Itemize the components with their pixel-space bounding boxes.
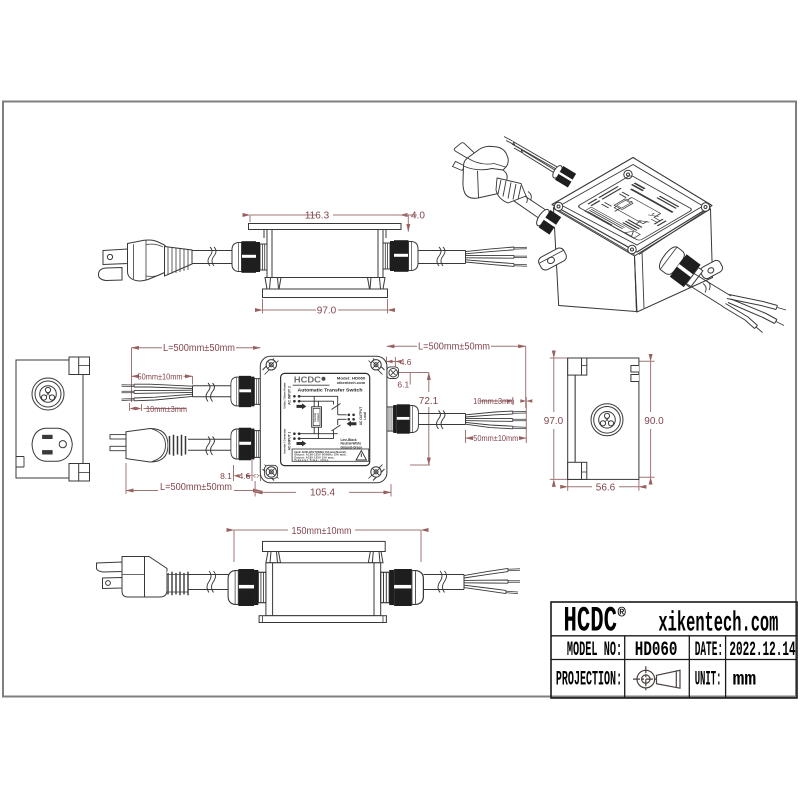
svg-text:105.4: 105.4 [310, 488, 335, 499]
svg-text:Transfer Time: 10ms: Transfer Time: 10ms [294, 458, 329, 462]
svg-text:150mm±10mm: 150mm±10mm [292, 526, 352, 537]
svg-text:Utility / Shore Power: Utility / Shore Power [283, 382, 287, 408]
svg-text:97.0: 97.0 [317, 306, 337, 317]
svg-text:UNIT:: UNIT: [695, 669, 722, 692]
svg-text:8.1: 8.1 [220, 471, 232, 481]
svg-text:Automatic Transfer Switch: Automatic Transfer Switch [298, 388, 363, 394]
svg-text:4.6: 4.6 [400, 357, 412, 367]
svg-text:90.0: 90.0 [644, 416, 664, 427]
svg-text:Model: HD060: Model: HD060 [337, 376, 366, 380]
svg-text:MODEL NO:: MODEL NO: [567, 639, 622, 662]
svg-text:72.1: 72.1 [419, 396, 439, 407]
svg-text:56.6: 56.6 [596, 482, 616, 493]
svg-text:10mm±3mm: 10mm±3mm [146, 404, 187, 414]
svg-text:xikentech.com: xikentech.com [658, 609, 778, 640]
svg-text:97.0: 97.0 [544, 416, 564, 427]
svg-text:HCDC: HCDC [564, 602, 618, 642]
svg-text:Inverter / Generator: Inverter / Generator [283, 429, 287, 454]
svg-text:®: ® [618, 606, 627, 622]
svg-text:10mm±3mm: 10mm±3mm [473, 396, 514, 406]
svg-text:50mm±10mm: 50mm±10mm [138, 371, 183, 381]
svg-text:116.3: 116.3 [305, 211, 330, 222]
svg-text:xikentech.com: xikentech.com [337, 381, 366, 385]
svg-text:4.0: 4.0 [411, 211, 425, 222]
svg-text:L=500mm±50mm: L=500mm±50mm [160, 482, 232, 493]
svg-text:L=500mm±50mm: L=500mm±50mm [418, 341, 490, 352]
svg-text:AC INPUT 1: AC INPUT 1 [287, 431, 291, 450]
svg-text:HCDC: HCDC [294, 376, 321, 385]
svg-text:Circuit: Circuit [316, 413, 320, 421]
svg-text:DATE:: DATE: [695, 639, 723, 662]
svg-text:mm: mm [733, 669, 757, 691]
svg-text:L=500mm±50mm: L=500mm±50mm [163, 343, 235, 354]
svg-text:Load: Load [363, 412, 367, 420]
svg-text:PROJECTION:: PROJECTION: [556, 669, 622, 692]
svg-text:AC INPUT 2: AC INPUT 2 [287, 386, 291, 405]
svg-text:HD060: HD060 [635, 639, 678, 662]
svg-text:2022.12.14: 2022.12.14 [729, 639, 795, 662]
svg-text:6.1: 6.1 [397, 379, 409, 389]
svg-text:50mm±10mm: 50mm±10mm [473, 433, 518, 443]
svg-text:4.6: 4.6 [239, 471, 251, 481]
